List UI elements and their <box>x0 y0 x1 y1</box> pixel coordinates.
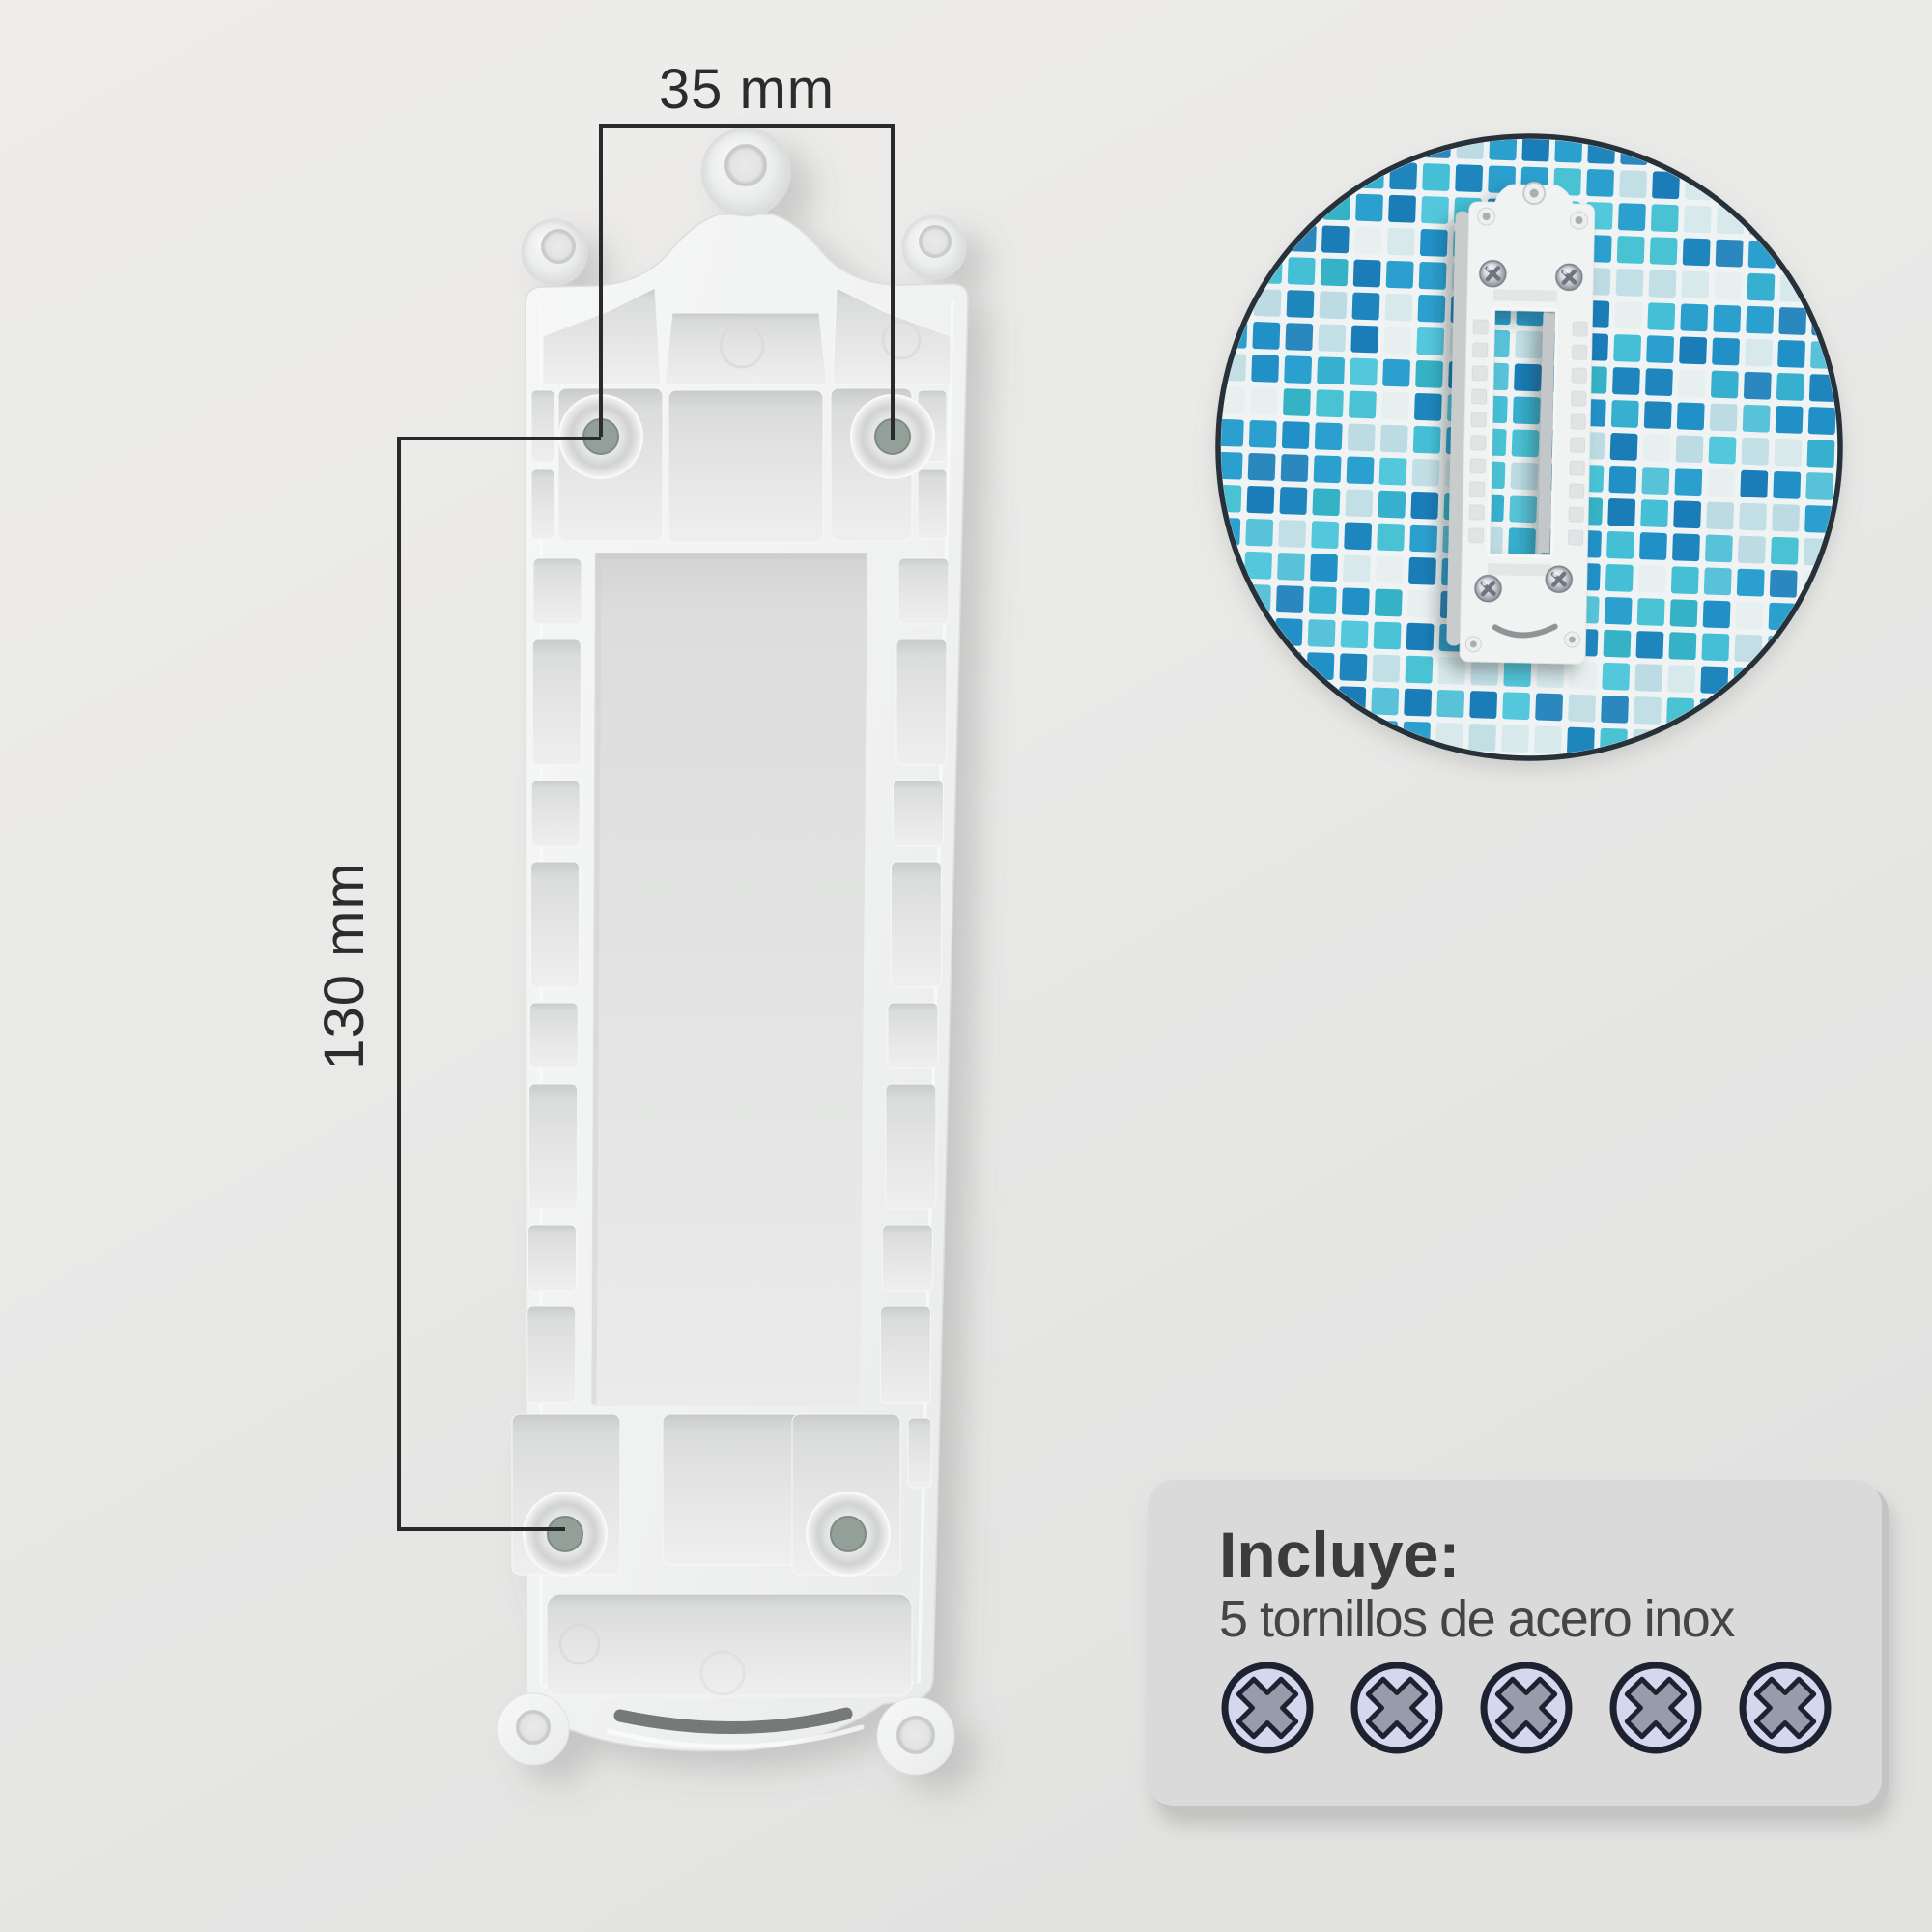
installed-rib-pocket <box>1569 530 1583 545</box>
mosaic-tile <box>1739 503 1767 531</box>
mosaic-tile <box>1437 657 1465 685</box>
mosaic-tile <box>1387 228 1415 256</box>
mosaic-tile <box>1514 363 1542 391</box>
mosaic-tile <box>1468 724 1496 752</box>
screw-hole <box>831 1517 866 1551</box>
installed-rib-pocket <box>1571 438 1585 452</box>
phillips-screw-icon <box>1556 264 1583 291</box>
mosaic-tile <box>1309 586 1337 614</box>
mosaic-tile <box>1513 396 1541 424</box>
mosaic-tile <box>1348 423 1376 451</box>
mosaic-tile <box>1354 227 1382 255</box>
mosaic-tile <box>1410 492 1438 520</box>
mosaic-tile <box>1535 693 1563 721</box>
mosaic-tile <box>1647 302 1675 330</box>
mosaic-tile <box>1742 438 1770 466</box>
mosaic-tile <box>1344 522 1372 550</box>
mosaic-tile <box>1746 306 1774 334</box>
rib-pocket <box>533 558 582 624</box>
mosaic-tile <box>1414 393 1442 421</box>
mosaic-tile <box>1422 163 1450 191</box>
mosaic-tile <box>1343 554 1371 582</box>
mosaic-tile <box>1413 426 1441 454</box>
dimension-label-130mm: 130 mm <box>313 862 376 1070</box>
mosaic-tile <box>1704 567 1732 595</box>
mosaic-tile <box>1613 334 1641 362</box>
central-opening <box>591 553 867 1406</box>
rib-pocket <box>529 1084 578 1209</box>
phillips-screw-icon <box>1480 260 1507 287</box>
mosaic-tile <box>1608 466 1636 494</box>
rib-pocket <box>882 1225 932 1291</box>
mosaic-tile <box>1670 599 1698 627</box>
mosaic-tile <box>1634 664 1662 692</box>
mosaic-tile <box>1683 238 1711 266</box>
installed-rib-pocket <box>1473 343 1488 357</box>
mosaic-tile <box>1285 323 1313 351</box>
mosaic-tile <box>1412 459 1440 487</box>
mosaic-tile <box>1283 388 1311 416</box>
mosaic-tile <box>1282 421 1310 449</box>
top-hanger-boss-hole <box>725 145 766 185</box>
mosaic-tile <box>1569 662 1597 690</box>
mosaic-tile <box>1736 602 1764 630</box>
mosaic-tile <box>1568 695 1596 723</box>
mosaic-tile <box>1536 660 1564 688</box>
mosaic-tile <box>1404 689 1432 717</box>
mosaic-tile <box>1667 665 1695 693</box>
mosaic-tile <box>1308 619 1336 647</box>
mosaic-tile <box>1508 527 1536 555</box>
mosaic-tile <box>1772 504 1800 532</box>
mosaic-tile <box>1421 196 1449 224</box>
mosaic-tile <box>1320 291 1348 319</box>
installed-rib-pocket <box>1570 484 1584 498</box>
hanger-ear-left <box>522 219 587 285</box>
mosaic-tile <box>1710 404 1738 432</box>
mosaic-tile <box>1707 469 1735 497</box>
mosaic-tile <box>1503 659 1531 687</box>
mosaic-tile <box>1321 225 1350 253</box>
installed-rib-pocket <box>1470 482 1485 497</box>
installed-rib-pocket <box>1472 366 1487 381</box>
mosaic-tile <box>1644 401 1672 429</box>
rib-pocket <box>896 639 947 765</box>
phillips-screw-icon <box>1475 575 1502 602</box>
mosaic-tile <box>1638 565 1666 593</box>
rib-band-bottom <box>1488 563 1551 576</box>
mosaic-tile <box>1379 458 1407 486</box>
mosaic-tile <box>1316 389 1344 417</box>
installed-rib-pocket <box>1469 528 1484 543</box>
mosaic-tile <box>1276 585 1304 613</box>
mosaic-tile <box>1601 696 1629 724</box>
installed-rib-pocket <box>1572 368 1586 383</box>
installed-rib-pocket <box>1471 436 1486 450</box>
mosaic-tile <box>1641 467 1669 495</box>
mosaic-tile <box>1740 470 1768 498</box>
mosaic-tile <box>1617 236 1645 264</box>
screw-icon <box>1484 1665 1569 1750</box>
mosaic-tile <box>1637 598 1665 626</box>
mosaic-tile <box>1469 691 1497 719</box>
mosaic-tile <box>1674 468 1702 496</box>
mosaic-tile <box>1776 406 1804 434</box>
mounting-plate-back-view <box>497 128 968 1775</box>
mosaic-tile <box>1339 653 1367 681</box>
mosaic-tile <box>1679 336 1707 364</box>
foot-tab-right-hole <box>897 1717 934 1753</box>
foot-tab-left-hole <box>517 1711 550 1744</box>
mosaic-tile <box>1417 295 1445 323</box>
mosaic-tile <box>1701 633 1729 661</box>
mosaic-tile <box>1501 724 1529 753</box>
mosaic-tile <box>1605 564 1634 592</box>
rib-pocket <box>531 781 580 846</box>
mosaic-tile <box>1747 273 1775 301</box>
hanger-ear-right-hole <box>920 226 951 257</box>
rib-pocket <box>888 1003 938 1068</box>
mosaic-tile <box>1355 194 1383 222</box>
mosaic-tile <box>1645 368 1673 396</box>
rib-pocket <box>527 1306 576 1403</box>
mosaic-tile <box>1341 620 1369 648</box>
mosaic-tile <box>1743 405 1771 433</box>
installed-rib-pocket <box>1573 322 1587 336</box>
mosaic-tile <box>1455 164 1483 192</box>
hanger-ear-left-hole <box>542 230 575 263</box>
mosaic-tile <box>1345 489 1373 517</box>
mosaic-tile <box>1676 435 1704 463</box>
mosaic-tile <box>1249 420 1277 448</box>
mosaic-tile <box>1415 360 1443 388</box>
mosaic-tile <box>1510 462 1538 490</box>
rib-band-top <box>1493 289 1557 301</box>
mosaic-tile <box>1420 229 1448 257</box>
rib-pocket <box>880 1306 930 1403</box>
mosaic-tile <box>1774 439 1802 467</box>
mosaic-tile <box>1347 456 1375 484</box>
mosaic-tile <box>1375 589 1403 617</box>
mosaic-tile <box>1602 663 1630 691</box>
mosaic-tile <box>1712 338 1740 366</box>
mosaic-tile <box>1744 372 1772 400</box>
mosaic-tile <box>1606 531 1634 559</box>
screw-hole <box>548 1517 582 1551</box>
foot-tab-right <box>877 1697 954 1775</box>
installed-rib-pocket <box>1470 459 1485 473</box>
mosaic-tile <box>1776 373 1804 401</box>
dimension-label-35mm: 35 mm <box>659 58 835 121</box>
mosaic-tile <box>1515 330 1543 358</box>
mosaic-tile <box>1616 269 1644 297</box>
mosaic-tile <box>1416 327 1444 355</box>
mosaic-tile <box>1770 570 1798 598</box>
mosaic-tile <box>1672 533 1700 561</box>
mosaic-tile <box>1349 390 1377 418</box>
screw-icon <box>1354 1665 1439 1750</box>
mosaic-tile <box>1380 425 1408 453</box>
mosaic-tile <box>1714 272 1742 300</box>
mosaic-tile <box>1650 237 1678 265</box>
mosaic-tile <box>1738 536 1766 564</box>
screw-icon <box>1613 1665 1698 1750</box>
mosaic-tile <box>1640 499 1668 527</box>
installed-rib-pocket <box>1473 320 1488 334</box>
mosaic-tile <box>1279 487 1307 515</box>
mosaic-tile <box>1352 293 1380 321</box>
installed-rib-pocket <box>1572 391 1586 406</box>
mosaic-tile <box>1406 623 1435 651</box>
mosaic-tile <box>1681 270 1709 298</box>
card-subtitle: 5 tornillos de acero inox <box>1219 1590 1735 1648</box>
phillips-screw-icon <box>1546 566 1573 593</box>
countersunk-hole <box>524 1492 607 1576</box>
mosaic-tile <box>1278 520 1306 548</box>
mosaic-tile <box>1314 455 1342 483</box>
rib-pocket <box>894 781 944 846</box>
installed-rib-pocket <box>1472 389 1487 404</box>
screw-icon <box>1225 1665 1310 1750</box>
mosaic-tile <box>1706 501 1734 529</box>
mosaic-tile <box>1509 495 1537 523</box>
installed-rib-pocket <box>1471 412 1486 427</box>
mosaic-tile <box>1350 326 1378 354</box>
mosaic-tile <box>1778 307 1806 335</box>
mosaic-tile <box>1246 486 1274 514</box>
rib-pocket <box>531 862 580 987</box>
mosaic-tile <box>1317 356 1345 384</box>
product-image: 35 mm 130 mm <box>0 0 1932 1932</box>
mosaic-tile <box>1284 355 1312 384</box>
mosaic-tile <box>1287 290 1315 318</box>
mosaic-tile <box>1251 355 1279 383</box>
rib-pocket <box>886 1084 936 1209</box>
mosaic-tile <box>1618 203 1646 231</box>
mosaic-tile <box>1310 554 1338 582</box>
mosaic-tile <box>1771 537 1799 565</box>
mosaic-tile <box>1281 454 1309 482</box>
mosaic-tile <box>1711 371 1739 399</box>
mosaic-tile <box>1677 402 1705 430</box>
mosaic-tile <box>1651 204 1679 232</box>
mosaic-tile <box>1381 392 1409 420</box>
mosaic-tile <box>1610 433 1638 461</box>
mosaic-tile <box>1634 696 1662 724</box>
mosaic-tile <box>1250 387 1278 415</box>
rib-pocket-column-left <box>527 558 582 1403</box>
mosaic-tile <box>1777 340 1805 368</box>
mosaic-tile <box>1705 534 1733 562</box>
mosaic-tile <box>1318 324 1346 352</box>
mosaic-tile <box>1409 525 1437 553</box>
installed-rib-pocket <box>1570 461 1584 475</box>
mosaic-tile <box>1376 556 1404 584</box>
mosaic-tile <box>1716 240 1744 268</box>
mosaic-tile <box>1312 488 1340 516</box>
mosaic-tile <box>1405 656 1433 684</box>
mosaic-tile <box>1248 453 1276 481</box>
mosaic-tile <box>1805 472 1833 500</box>
mosaic-tile <box>1383 327 1411 355</box>
mosaic-tile <box>1619 170 1647 198</box>
mosaic-tile <box>1586 169 1614 197</box>
mosaic-tile <box>1773 471 1801 499</box>
includes-card: Incluye: 5 tornillos de acero inox <box>1148 1480 1889 1812</box>
mosaic-tile <box>1614 301 1642 329</box>
mosaic-tile <box>1611 400 1639 428</box>
mosaic-tile <box>1315 422 1343 450</box>
mosaic-tile <box>1603 630 1631 658</box>
mosaic-tile <box>1680 303 1708 331</box>
mosaic-tile <box>1605 597 1633 625</box>
mosaic-tile <box>1311 521 1339 549</box>
mosaic-tile <box>1671 566 1699 594</box>
mosaic-tile <box>1534 725 1562 753</box>
mosaic-tile <box>1382 359 1410 387</box>
mosaic-tile <box>1678 369 1706 397</box>
rib-pocket <box>892 862 942 987</box>
mosaic-tile <box>1372 654 1400 682</box>
installed-rib-pocket <box>1469 505 1484 520</box>
mosaic-tile <box>1407 590 1435 618</box>
mosaic-tile <box>1673 500 1701 528</box>
mosaic-tile <box>1277 553 1305 581</box>
mosaic-tile <box>1321 258 1349 286</box>
mosaic-tile <box>1371 687 1399 715</box>
mosaic-tile <box>1436 690 1464 718</box>
screw-icon <box>1743 1665 1828 1750</box>
installed-rib-pocket <box>1573 345 1587 359</box>
mosaic-tile <box>1612 367 1640 395</box>
mosaic-tile <box>1684 205 1712 233</box>
rib-pocket <box>529 1003 578 1068</box>
mosaic-tile <box>1419 262 1447 290</box>
mosaic-tile <box>1709 437 1737 465</box>
mosaic-tile <box>1745 339 1773 367</box>
rib-pocket <box>532 639 581 765</box>
mosaic-tile <box>1643 434 1671 462</box>
product-illustration: 35 mm 130 mm <box>0 0 1932 1932</box>
hanger-ear-right <box>902 215 966 279</box>
mosaic-tile <box>1502 692 1530 720</box>
rib-pocket <box>898 558 949 624</box>
mosaic-tile <box>1378 491 1406 519</box>
mosaic-tile <box>1639 532 1667 560</box>
mosaic-tile <box>1635 631 1663 659</box>
mosaic-tile <box>1713 305 1741 333</box>
rib-pocket <box>528 1225 577 1291</box>
mosaic-tile <box>1646 335 1674 363</box>
mosaic-tile <box>1342 587 1370 615</box>
mosaic-tile <box>1388 195 1416 223</box>
mosaic-tile <box>1377 524 1405 552</box>
mosaic-tile <box>1288 257 1316 285</box>
mosaic-tile <box>1668 632 1696 660</box>
mosaic-tile <box>1353 260 1381 288</box>
mosaic-tile <box>1384 294 1412 322</box>
mosaic-tile <box>1607 498 1635 526</box>
mosaic-tile <box>1806 440 1834 468</box>
mosaic-tile <box>1808 407 1836 435</box>
mosaic-tile <box>1252 322 1280 350</box>
mosaic-tile <box>1512 429 1540 457</box>
mosaic-tile <box>1245 519 1273 547</box>
mosaic-tile <box>1350 357 1378 385</box>
mosaic-tile <box>1703 600 1731 628</box>
mosaic-tile <box>1408 557 1436 585</box>
countersunk-hole <box>807 1492 890 1576</box>
mosaic-tile <box>1386 261 1414 289</box>
mosaic-tile <box>1374 622 1402 650</box>
installed-rib-pocket <box>1569 507 1583 522</box>
top-hanger-boss <box>701 128 790 216</box>
foot-tab-left <box>497 1693 569 1765</box>
mosaic-tile <box>1737 569 1765 597</box>
installed-rib-pocket <box>1571 414 1585 429</box>
mosaic-tile <box>1649 270 1677 298</box>
card-title: Incluye: <box>1219 1519 1460 1590</box>
